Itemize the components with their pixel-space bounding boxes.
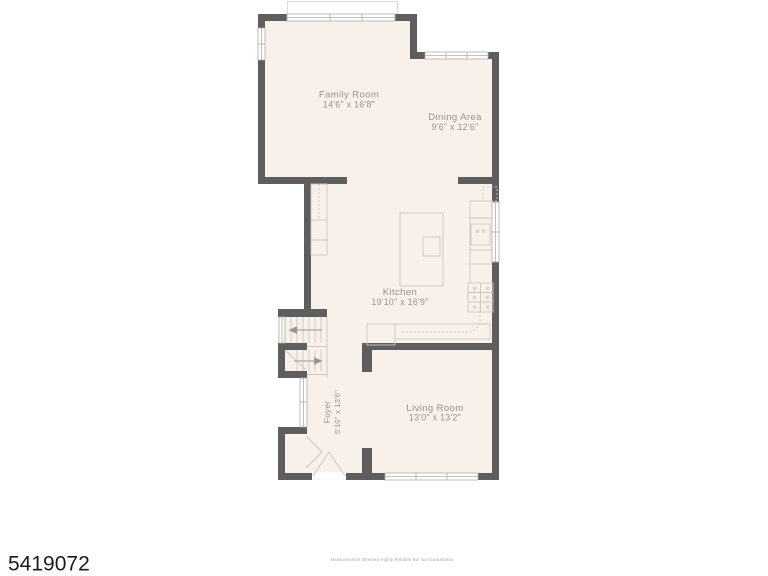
wall-living-west-lower [362, 448, 372, 473]
wall-family-bottom [258, 177, 347, 184]
window-living-bottom [385, 473, 478, 480]
wall-living-top [362, 343, 499, 350]
wall-kitchen-west [304, 177, 311, 317]
foyer-dimensions: 5'10" x 13'6" [333, 390, 342, 434]
wall-closet-left [278, 427, 285, 480]
entry-door-opening [312, 473, 346, 481]
window-dining-top [425, 52, 488, 59]
deck-outline [288, 2, 398, 15]
floor-plan-page: Family Room 14'6" x 16'8" Dining Area 9'… [0, 0, 768, 576]
family-room-dimensions: 14'6" x 16'8" [323, 100, 375, 110]
window-kitchen-right [492, 202, 499, 262]
floor-plan-drawing: Family Room 14'6" x 16'8" Dining Area 9'… [0, 0, 768, 576]
window-foyer-west [300, 378, 307, 427]
window-family-top [287, 14, 395, 21]
living-room-dimensions: 13'0" x 13'2" [409, 413, 461, 423]
kitchen-dimensions: 19'10" x 16'9" [371, 297, 428, 307]
wall-living-west-upper [362, 350, 372, 372]
disclaimer-text: Measurements Deemed Highly Reliable But … [331, 557, 454, 562]
wall-stair-top [278, 309, 327, 317]
wall-right-exterior [492, 52, 499, 480]
dining-area-dimensions: 9'6" x 12'6" [432, 122, 479, 132]
window-stair-west [279, 317, 285, 343]
wall-dining-bottom [458, 177, 499, 184]
foyer-label: Foyer [323, 401, 332, 423]
mls-number: 5419072 [8, 553, 90, 576]
wall-stair-bottom [278, 371, 307, 378]
window-family-left [258, 28, 265, 60]
